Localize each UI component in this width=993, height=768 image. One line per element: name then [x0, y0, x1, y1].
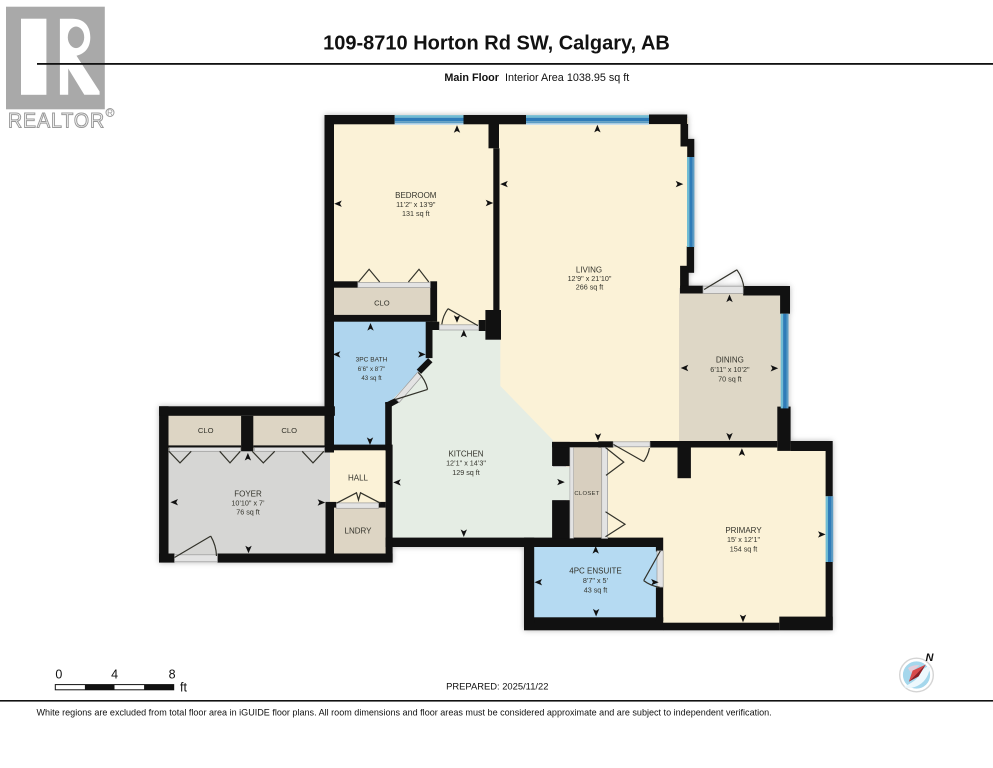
svg-text:White regions are excluded fro: White regions are excluded from total fl… [37, 708, 772, 718]
svg-text:154 sq ft: 154 sq ft [730, 545, 758, 554]
svg-text:6’6" x 8’7": 6’6" x 8’7" [358, 366, 385, 373]
svg-text:BEDROOM: BEDROOM [395, 191, 437, 200]
svg-text:CLO: CLO [198, 426, 214, 435]
svg-text:129 sq ft: 129 sq ft [452, 468, 480, 477]
svg-text:43 sq ft: 43 sq ft [361, 375, 382, 382]
svg-text:12’9" x 21’10": 12’9" x 21’10" [568, 274, 612, 283]
svg-text:FOYER: FOYER [234, 489, 262, 498]
svg-text:CLOSET: CLOSET [574, 491, 599, 497]
svg-text:CLO: CLO [281, 426, 297, 435]
svg-text:8: 8 [169, 668, 176, 682]
svg-text:43 sq ft: 43 sq ft [584, 586, 608, 595]
svg-text:PREPARED: 2025/11/22: PREPARED: 2025/11/22 [446, 680, 548, 691]
svg-text:109-8710 Horton Rd SW, Calgary: 109-8710 Horton Rd SW, Calgary, AB [323, 33, 670, 55]
svg-text:10’10" x 7’: 10’10" x 7’ [231, 499, 265, 508]
svg-text:LNDRY: LNDRY [345, 526, 373, 535]
svg-text:4PC ENSUITE: 4PC ENSUITE [569, 567, 621, 576]
svg-text:11’2" x 13’9": 11’2" x 13’9" [396, 200, 436, 209]
svg-text:REALTOR: REALTOR [8, 110, 105, 133]
svg-text:PRIMARY: PRIMARY [725, 526, 762, 535]
svg-text:DINING: DINING [716, 356, 744, 365]
svg-text:R: R [107, 109, 113, 118]
svg-text:15’ x 12’1": 15’ x 12’1" [727, 535, 761, 544]
svg-text:Interior Area 1038.95 sq ft: Interior Area 1038.95 sq ft [505, 72, 629, 84]
svg-text:6’11" x 10’2": 6’11" x 10’2" [710, 365, 750, 374]
svg-text:266 sq ft: 266 sq ft [576, 283, 604, 292]
svg-text:4: 4 [111, 668, 118, 682]
svg-text:76 sq ft: 76 sq ft [236, 508, 260, 517]
svg-text:ft: ft [180, 681, 187, 695]
svg-text:KITCHEN: KITCHEN [448, 449, 483, 458]
svg-text:CLO: CLO [374, 299, 390, 308]
svg-text:131 sq ft: 131 sq ft [402, 209, 430, 218]
svg-text:12’1" x 14’3": 12’1" x 14’3" [446, 459, 486, 468]
svg-text:N: N [926, 652, 935, 664]
svg-text:Main Floor: Main Floor [444, 72, 499, 84]
svg-text:3PC BATH: 3PC BATH [356, 357, 388, 364]
svg-text:HALL: HALL [348, 474, 369, 483]
svg-text:0: 0 [55, 668, 62, 682]
svg-text:8’7" x 5’: 8’7" x 5’ [583, 576, 609, 585]
svg-text:70 sq ft: 70 sq ft [718, 375, 742, 384]
